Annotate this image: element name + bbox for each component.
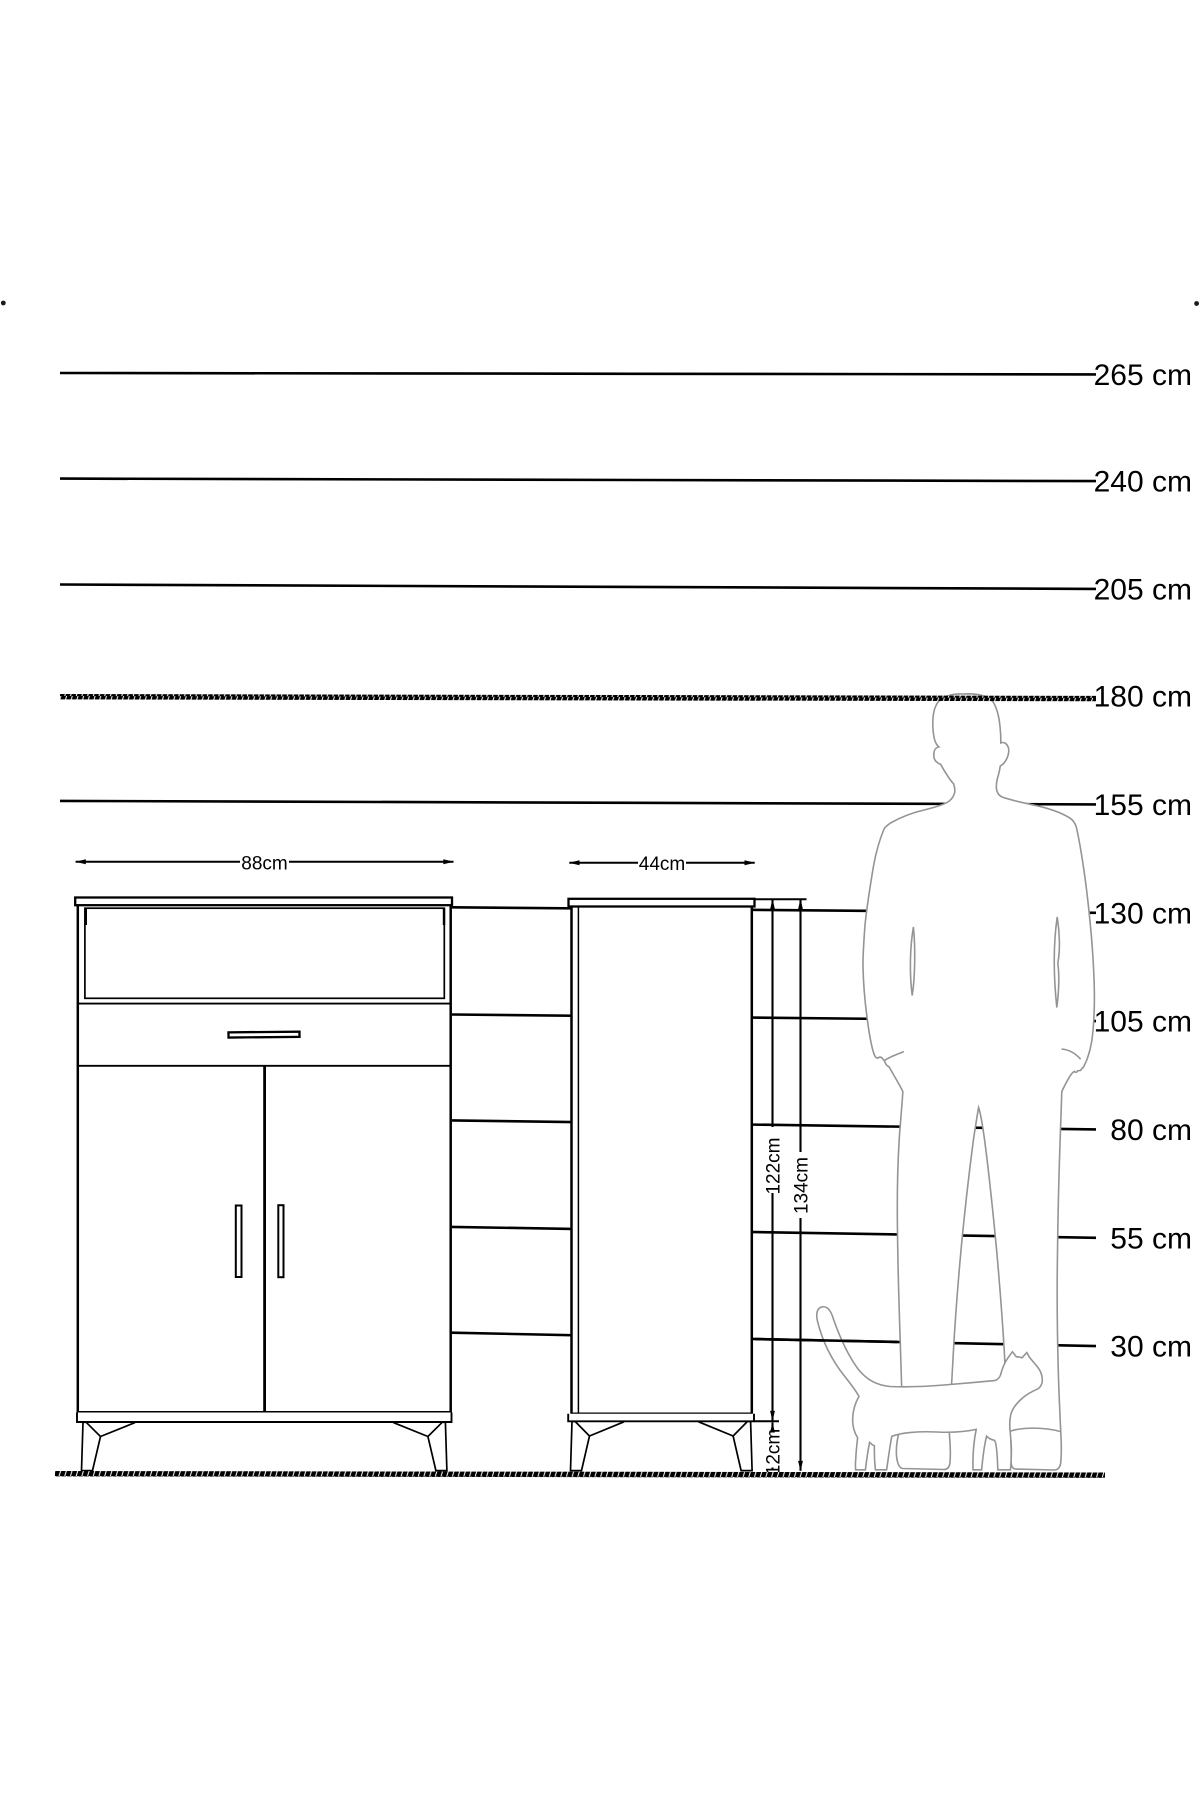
svg-text:55 cm: 55 cm xyxy=(1110,1222,1192,1255)
svg-text:88cm: 88cm xyxy=(241,853,287,874)
svg-text:130 cm: 130 cm xyxy=(1094,897,1192,930)
svg-text:44cm: 44cm xyxy=(639,854,685,875)
svg-text:240 cm: 240 cm xyxy=(1094,466,1192,499)
svg-text:205 cm: 205 cm xyxy=(1094,573,1192,606)
svg-text:80 cm: 80 cm xyxy=(1110,1114,1192,1147)
svg-text:122cm: 122cm xyxy=(764,1137,785,1194)
svg-text:180 cm: 180 cm xyxy=(1094,681,1192,714)
svg-text:134cm: 134cm xyxy=(792,1157,813,1214)
svg-text:155 cm: 155 cm xyxy=(1094,789,1192,822)
svg-text:105 cm: 105 cm xyxy=(1094,1006,1192,1039)
svg-text:265 cm: 265 cm xyxy=(1094,359,1192,392)
svg-text:30 cm: 30 cm xyxy=(1110,1331,1192,1364)
svg-text:12cm: 12cm xyxy=(764,1429,785,1475)
